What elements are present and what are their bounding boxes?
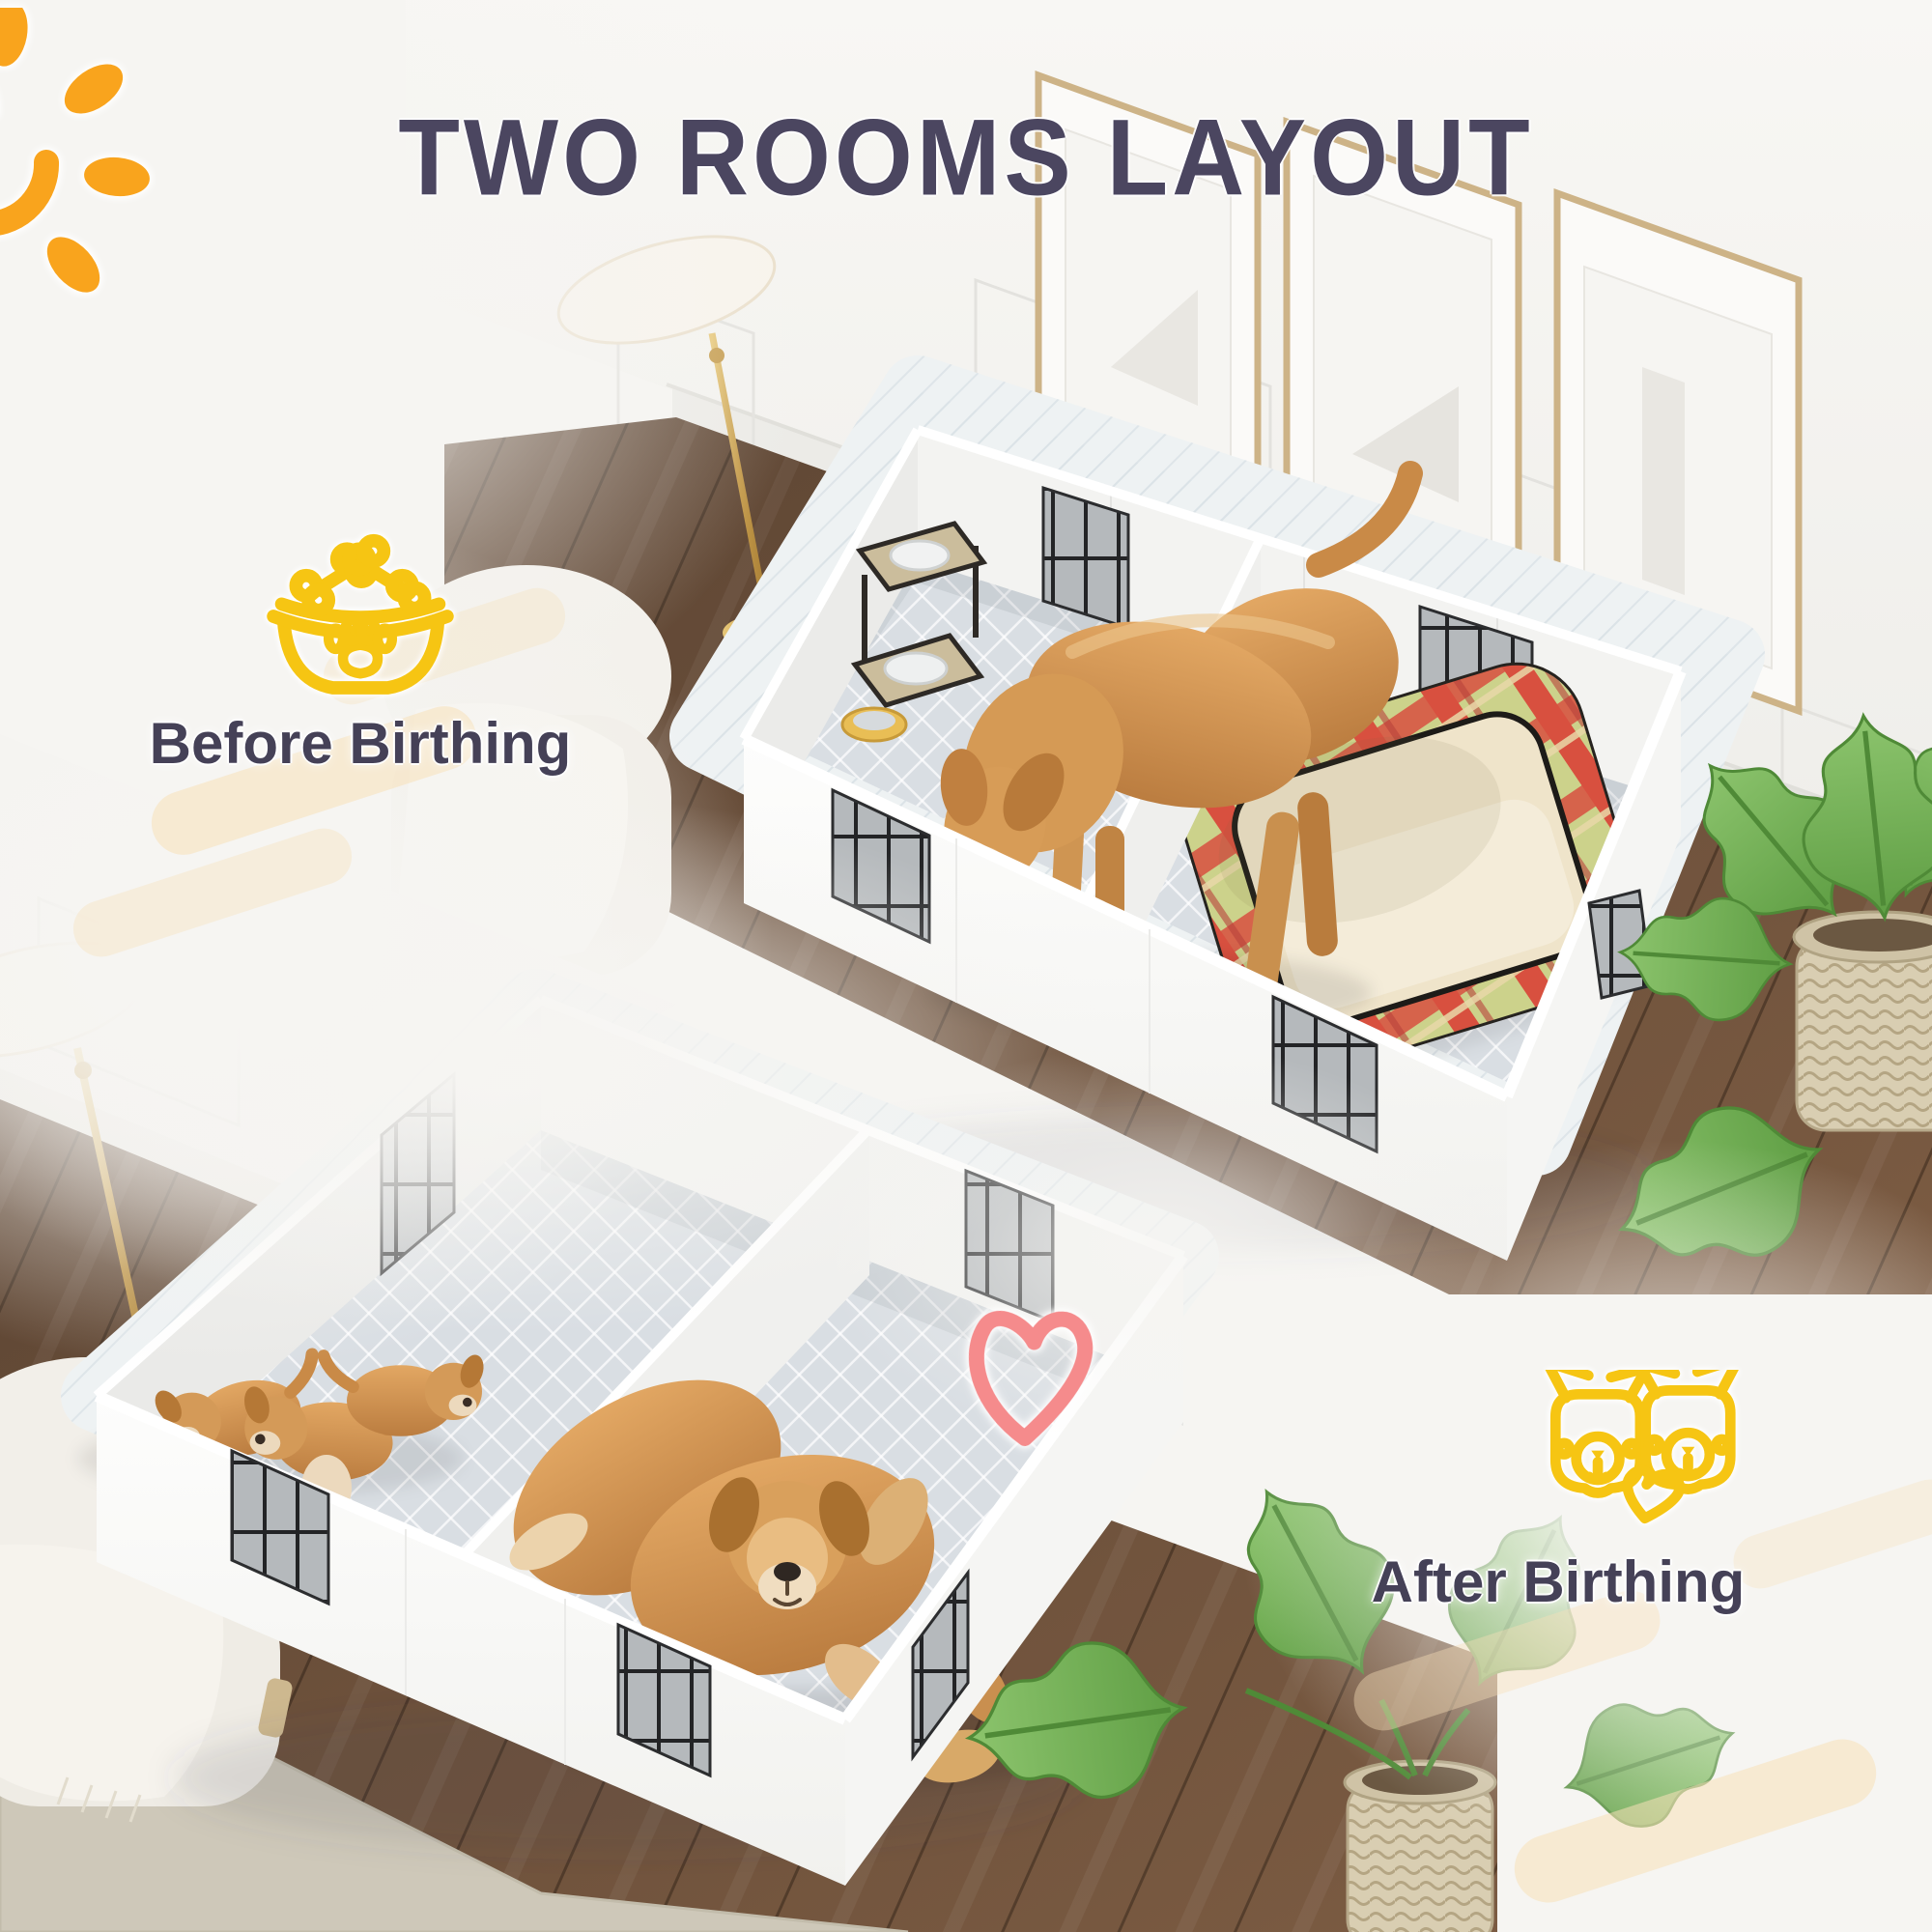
after-birthing-text: After Birthing [1372,1549,1746,1614]
dog-bowl-with-bones-icon [249,526,471,705]
hand-drawn-heart-icon [930,1274,1132,1476]
before-birthing-label: Before Birthing [114,526,607,777]
after-birthing-label: After Birthing [1331,1370,1785,1615]
two-dogs-heart-icon [1539,1370,1766,1544]
product-infographic-two-rooms-layout: TWO ROOMS LAYOUT [0,0,1932,1932]
page-title: TWO ROOMS LAYOUT [398,97,1533,221]
room-scenes-illustration [0,0,1932,1932]
yellow-water-bowl [842,708,906,741]
sun-swirl-icon [0,8,218,327]
before-birthing-text: Before Birthing [150,711,572,776]
